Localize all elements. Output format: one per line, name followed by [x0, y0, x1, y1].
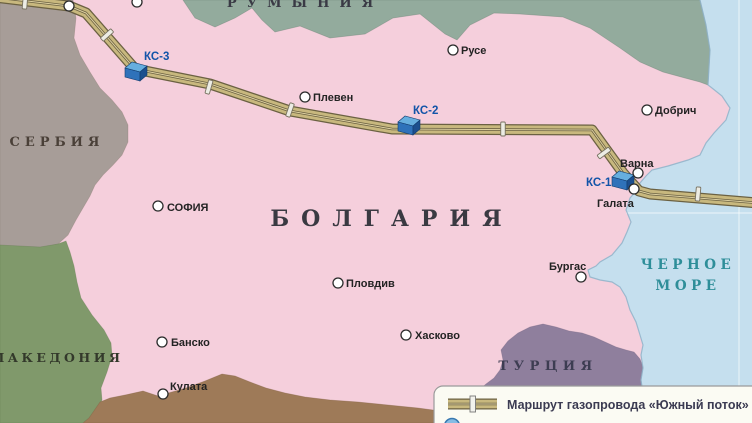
legend-item-pipeline-label: Маршрут газопровода «Южный поток»	[507, 398, 749, 412]
city-marker-nw-1	[64, 1, 74, 11]
label-sea-line1: ЧЕРНОЕ	[641, 257, 736, 273]
city-label-pleven: Плевен	[313, 92, 353, 104]
station-label-ks-3: КС-3	[144, 51, 169, 63]
city-label-kulata: Кулата	[170, 381, 208, 393]
city-marker-plovdiv	[333, 278, 343, 288]
city-label-dobrich: Добрич	[655, 105, 696, 117]
label-macedonia: МАКЕДОНИЯ	[0, 350, 124, 365]
city-marker-ruse	[448, 45, 458, 55]
city-marker-kulata	[158, 389, 168, 399]
city-marker-sofia	[153, 201, 163, 211]
city-marker-haskovo	[401, 330, 411, 340]
label-turkey: ТУРЦИЯ	[498, 359, 597, 374]
pipeline-joint-1	[22, 0, 28, 9]
city-marker-galata	[629, 184, 639, 194]
legend: Маршрут газопровода «Южный поток»	[434, 386, 752, 423]
pipeline-joint-7	[695, 187, 701, 201]
station-label-ks-1: КС-1	[586, 177, 612, 189]
city-label-sofia: СОФИЯ	[167, 202, 209, 214]
city-label-bansko: Банско	[171, 337, 210, 349]
city-label-galata: Галата	[597, 198, 635, 210]
city-label-varna: Варна	[620, 158, 654, 170]
city-marker-nw-2	[132, 0, 142, 7]
city-label-ruse: Русе	[461, 45, 486, 57]
pipeline-map: КС-3КС-2КС-1 РусеПлевенДобричВарнаГалата…	[0, 0, 752, 423]
label-serbia: СЕРБИЯ	[10, 135, 105, 150]
city-marker-bansko	[157, 337, 167, 347]
city-marker-burgas	[576, 272, 586, 282]
city-marker-pleven	[300, 92, 310, 102]
label-bulgaria: БОЛГАРИЯ	[270, 206, 513, 232]
station-label-ks-2: КС-2	[413, 105, 438, 117]
label-romania: РУМЫНИЯ	[227, 0, 383, 11]
map-canvas: КС-3КС-2КС-1 РусеПлевенДобричВарнаГалата…	[0, 0, 752, 423]
city-label-plovdiv: Пловдив	[346, 278, 395, 290]
label-sea-line2: МОРЕ	[655, 278, 720, 294]
city-label-haskovo: Хасково	[415, 330, 460, 342]
pipeline-joint-5	[501, 122, 506, 136]
city-marker-dobrich	[642, 105, 652, 115]
city-label-burgas: Бургас	[549, 261, 586, 273]
